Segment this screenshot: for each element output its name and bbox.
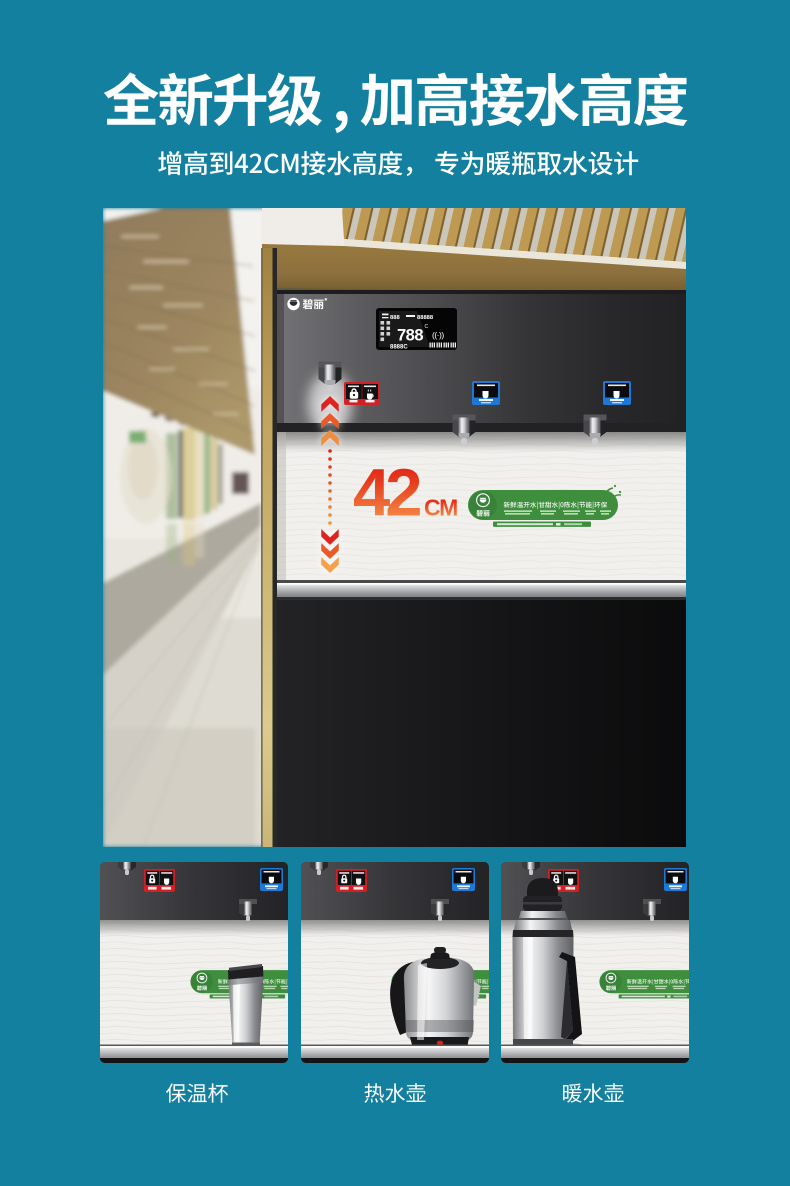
svg-text:788: 788 bbox=[397, 327, 423, 345]
svg-text:CM: CM bbox=[424, 495, 457, 521]
svg-text:88888: 88888 bbox=[417, 315, 434, 321]
svg-text:42: 42 bbox=[353, 456, 420, 531]
svg-text:8888C: 8888C bbox=[390, 345, 408, 351]
svg-text:888: 888 bbox=[390, 315, 400, 321]
svg-text:C: C bbox=[425, 324, 429, 330]
svg-text:((·)): ((·)) bbox=[432, 330, 444, 340]
